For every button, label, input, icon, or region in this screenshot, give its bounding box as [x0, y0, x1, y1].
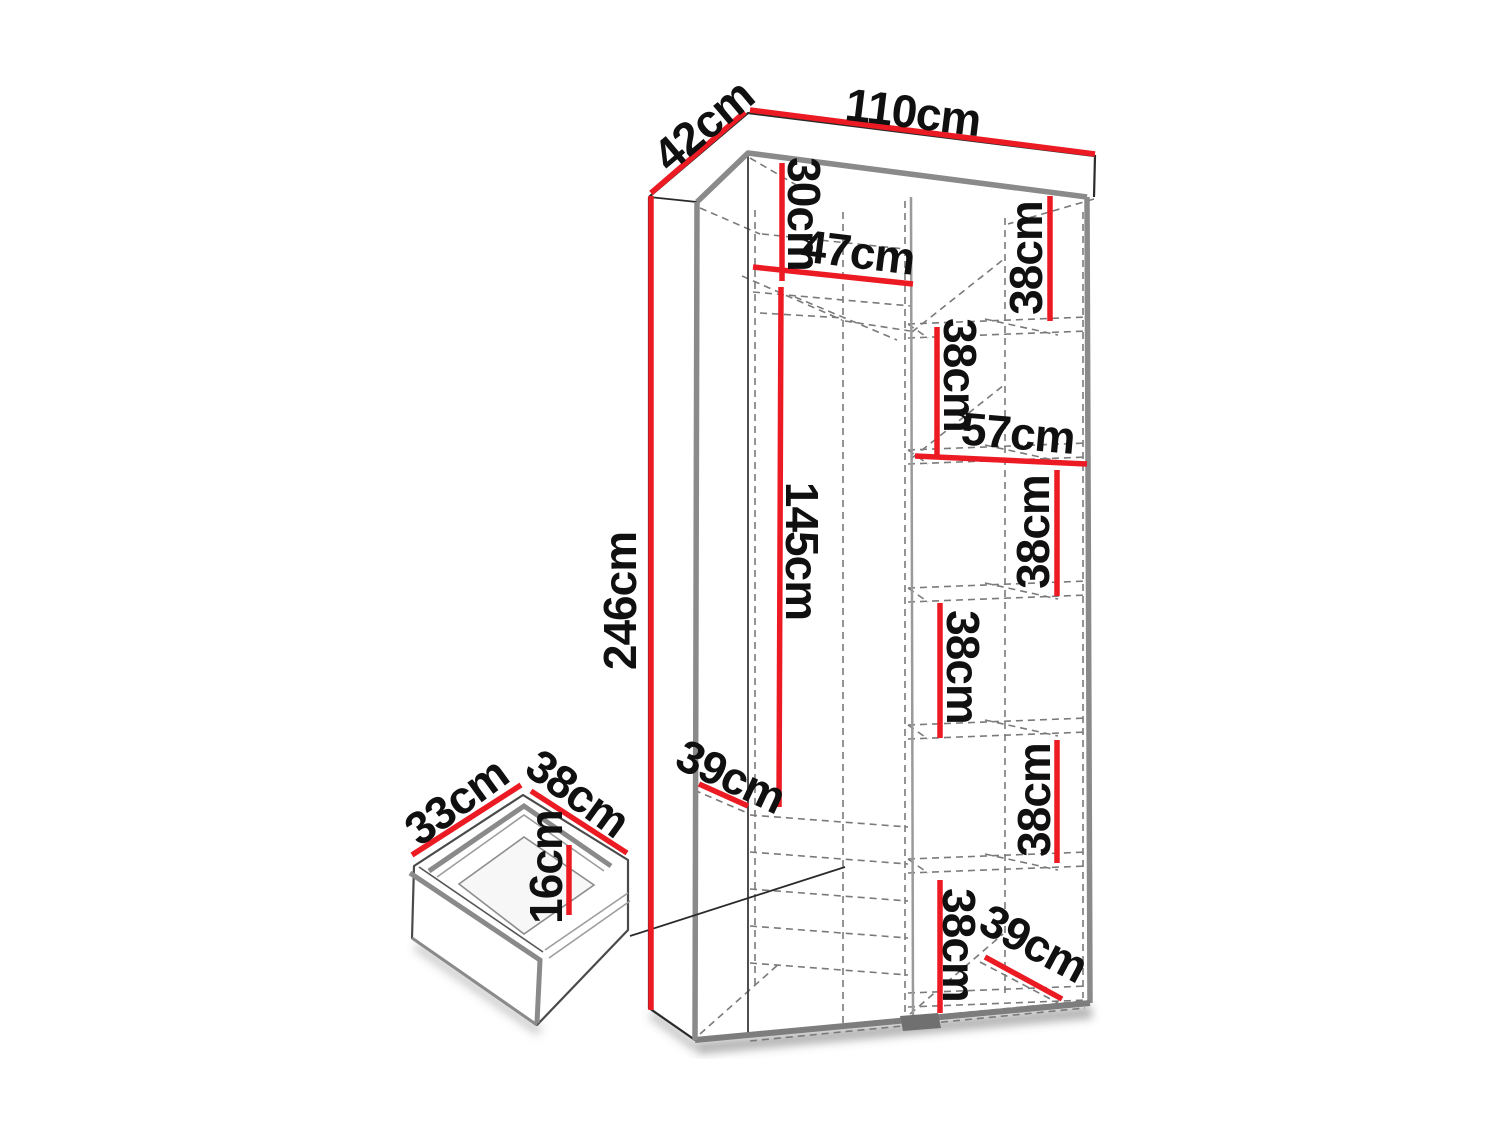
dimension-diagram-canvas: 42cm 110cm 246cm 30cm 47cm 38cm 38cm 57c…	[0, 0, 1500, 1125]
dim-label-38cm-center: 38cm	[937, 610, 989, 724]
wardrobe-side-panel	[649, 197, 697, 1040]
carcass-right-edge	[1087, 197, 1090, 1003]
dim-label-57cm: 57cm	[959, 402, 1077, 464]
dim-label-246cm: 246cm	[594, 532, 646, 670]
dim-label-16cm: 16cm	[520, 810, 572, 924]
wardrobe-dimension-diagram: 42cm 110cm 246cm 30cm 47cm 38cm 38cm 57c…	[0, 0, 1500, 1125]
dim-label-38cm-bottom: 38cm	[933, 888, 985, 1002]
plinth-foot	[900, 1013, 941, 1031]
dim-label-38cm-top-right: 38cm	[1000, 201, 1052, 315]
dim-label-38cm-lower-right: 38cm	[1008, 743, 1060, 857]
dim-label-145cm: 145cm	[776, 482, 828, 620]
dim-label-38cm-mid-right: 38cm	[1007, 475, 1059, 589]
